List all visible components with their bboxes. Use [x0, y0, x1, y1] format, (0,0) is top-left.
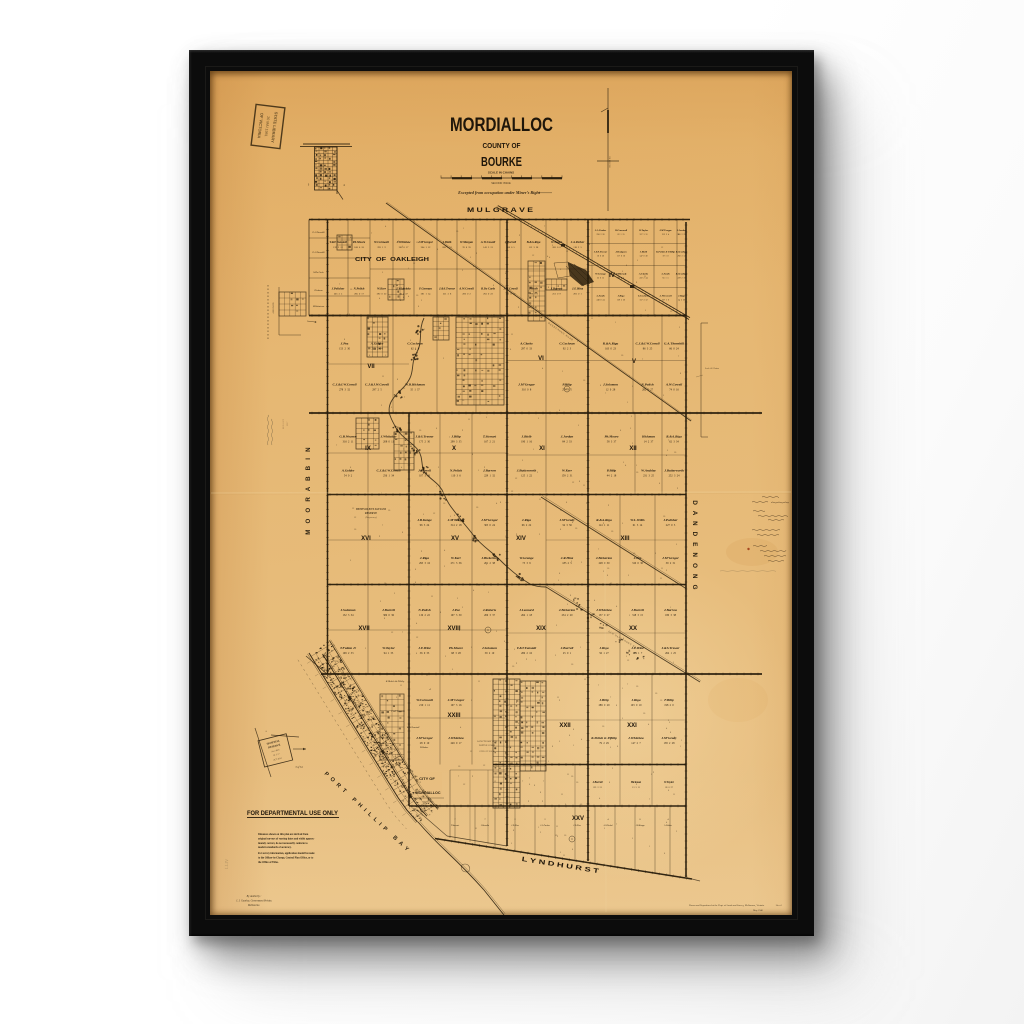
svg-text:J.M’Grady: J.M’Grady — [559, 518, 575, 522]
svg-text:215 2 24: 215 2 24 — [372, 347, 384, 350]
svg-text:1: 1 — [670, 607, 671, 609]
svg-text:J.Solomon: J.Solomon — [603, 383, 618, 387]
svg-text:11: 11 — [475, 828, 477, 830]
svg-text:K.Polish & P.Bilip: K.Polish & P.Bilip — [590, 736, 617, 740]
svg-text:A: A — [265, 730, 267, 733]
svg-text:3 of 34: 3 of 34 — [295, 766, 303, 769]
svg-text:269 2 16: 269 2 16 — [521, 652, 533, 655]
svg-text:5: 5 — [496, 631, 498, 633]
svg-text:12: 12 — [619, 274, 621, 276]
svg-text:M U L G R A V E: M U L G R A V E — [467, 207, 533, 214]
svg-text:206 0 2: 206 0 2 — [462, 293, 471, 296]
svg-text:3: 3 — [666, 570, 668, 572]
svg-text:2: 2 — [527, 299, 528, 301]
svg-text:Hickman: Hickman — [641, 434, 655, 438]
svg-text:1: 1 — [627, 402, 628, 404]
svg-text:4: 4 — [626, 652, 628, 654]
svg-text:11: 11 — [414, 455, 416, 457]
svg-text:10: 10 — [462, 400, 465, 402]
svg-text:185 2 5: 185 2 5 — [562, 562, 572, 565]
svg-text:J.Riga: J.Riga — [420, 556, 429, 560]
svg-text:231 3 25: 231 3 25 — [643, 474, 655, 477]
svg-text:147 0 30: 147 0 30 — [640, 256, 648, 258]
svg-text:J.Whitelaw: J.Whitelaw — [448, 736, 464, 740]
svg-text:12: 12 — [661, 247, 663, 249]
svg-text:A.W.Cowell: A.W.Cowell — [458, 287, 474, 291]
svg-text:39 2 31: 39 2 31 — [666, 562, 676, 565]
svg-text:264 1 18: 264 1 18 — [521, 614, 533, 617]
svg-text:XIII: XIII — [620, 536, 629, 542]
svg-text:1: 1 — [673, 662, 674, 664]
svg-text:XIX: XIX — [536, 626, 546, 632]
svg-text:23 0 15: 23 0 15 — [597, 278, 604, 280]
svg-text:10: 10 — [564, 835, 567, 837]
svg-text:8: 8 — [440, 612, 442, 614]
svg-text:modern standards of accuracy.: modern standards of accuracy. — [258, 846, 292, 849]
svg-text:6: 6 — [350, 467, 352, 469]
svg-text:J.Poz: J.Poz — [341, 341, 349, 345]
svg-text:12: 12 — [515, 478, 517, 480]
svg-text:6: 6 — [559, 573, 561, 575]
svg-text:10: 10 — [575, 528, 578, 530]
svg-text:9: 9 — [588, 502, 589, 504]
svg-text:2: 2 — [603, 571, 604, 573]
svg-text:N.Polish: N.Polish — [417, 608, 430, 612]
svg-text:C.Cochran: C.Cochran — [638, 295, 650, 298]
svg-text:A.W.Cowell: A.W.Cowell — [665, 383, 682, 387]
svg-text:1: 1 — [488, 592, 489, 594]
svg-text:J.Bickerton: J.Bickerton — [481, 556, 497, 560]
svg-text:11: 11 — [426, 675, 428, 677]
svg-text:12: 12 — [584, 679, 586, 681]
svg-text:6: 6 — [400, 300, 402, 302]
svg-text:9: 9 — [559, 700, 560, 702]
svg-text:7: 7 — [544, 226, 546, 228]
svg-text:292 0 22: 292 0 22 — [377, 293, 387, 296]
svg-text:1: 1 — [675, 582, 676, 584]
svg-text:SCALE IN CHAINS: SCALE IN CHAINS — [488, 171, 514, 175]
svg-text:8: 8 — [493, 285, 495, 287]
svg-text:D A N D E N O N G R O A D: D A N D E N O N G R O A D — [547, 322, 573, 342]
svg-text:8: 8 — [540, 792, 542, 794]
svg-text:4: 4 — [408, 296, 410, 298]
svg-text:7: 7 — [484, 818, 486, 821]
svg-text:J.Bielb: J.Bielb — [529, 287, 538, 291]
svg-text:10: 10 — [611, 531, 614, 533]
svg-text:229 2 18: 229 2 18 — [678, 278, 686, 280]
svg-text:9: 9 — [653, 772, 654, 774]
svg-text:8: 8 — [670, 732, 672, 734]
svg-text:10: 10 — [350, 289, 353, 291]
svg-text:3: 3 — [628, 575, 630, 577]
svg-text:B.&A.Riga: B.&A.Riga — [526, 240, 541, 244]
svg-text:81 3 17: 81 3 17 — [273, 753, 280, 757]
svg-text:4: 4 — [549, 257, 551, 259]
svg-text:281 1 14: 281 1 14 — [421, 293, 431, 296]
svg-text:RED OUT: RED OUT — [282, 418, 285, 429]
svg-text:5: 5 — [402, 246, 404, 248]
svg-text:8: 8 — [534, 785, 536, 787]
svg-text:222 2 34: 222 2 34 — [640, 278, 648, 280]
svg-text:2: 2 — [540, 832, 541, 834]
svg-text:(Temporary): (Temporary) — [365, 516, 377, 519]
svg-text:W.Baker: W.Baker — [420, 746, 428, 749]
svg-text:108 0 18: 108 0 18 — [354, 246, 364, 249]
svg-text:6: 6 — [415, 582, 417, 584]
svg-text:C.Cochran: C.Cochran — [407, 341, 422, 345]
svg-text:9: 9 — [588, 340, 589, 342]
svg-text:3: 3 — [679, 327, 681, 329]
svg-text:BOURKE: BOURKE — [481, 155, 522, 169]
svg-text:J.Whitelaw: J.Whitelaw — [397, 240, 412, 244]
svg-text:11: 11 — [660, 578, 662, 580]
svg-text:M O O R A B B I N: M O O R A B B I N — [305, 445, 312, 535]
svg-text:59 2 10: 59 2 10 — [485, 652, 495, 655]
svg-text:RESERVE: RESERVE — [365, 512, 377, 515]
svg-text:282 0 27: 282 0 27 — [642, 389, 654, 392]
svg-text:7: 7 — [605, 393, 607, 395]
svg-text:J.E.Hinz: J.E.Hinz — [572, 287, 584, 291]
svg-text:285 0 6: 285 0 6 — [552, 246, 561, 249]
svg-text:7: 7 — [610, 697, 612, 699]
svg-text:9: 9 — [421, 551, 422, 553]
svg-text:11: 11 — [511, 334, 513, 336]
svg-text:1: 1 — [626, 656, 627, 658]
svg-text:251 0 9: 251 0 9 — [552, 293, 561, 296]
svg-text:CITY OF: CITY OF — [419, 776, 435, 781]
svg-text:May 1946: May 1946 — [753, 909, 764, 912]
svg-text:4: 4 — [581, 739, 583, 741]
svg-text:206 2 29: 206 2 29 — [678, 234, 686, 236]
svg-text:6: 6 — [569, 735, 571, 737]
svg-text:231 0 16: 231 0 16 — [506, 293, 516, 296]
svg-text:W.L.Willis: W.L.Willis — [630, 518, 645, 522]
svg-text:11: 11 — [644, 276, 646, 278]
svg-text:7: 7 — [669, 231, 671, 233]
svg-text:6: 6 — [576, 818, 578, 821]
svg-text:219 1 11: 219 1 11 — [419, 704, 430, 707]
svg-text:Drawn and Reproduced at the De: Drawn and Reproduced at the Dept. of Lan… — [689, 904, 765, 907]
svg-text:T.&T.Tunstall: T.&T.Tunstall — [391, 710, 405, 713]
svg-text:12: 12 — [354, 517, 356, 519]
svg-text:2: 2 — [443, 358, 444, 360]
svg-text:200 ACRES: 200 ACRES — [423, 801, 435, 804]
svg-text:5: 5 — [511, 843, 513, 845]
svg-text:J.B.Kenge: J.B.Kenge — [636, 825, 645, 827]
svg-text:V: V — [632, 359, 636, 365]
svg-text:XII: XII — [629, 446, 637, 452]
svg-text:F.Bilip: F.Bilip — [664, 698, 674, 702]
svg-text:8: 8 — [446, 246, 448, 248]
svg-text:W.B.Hickman: W.B.Hickman — [405, 383, 425, 387]
svg-text:W.Cornwall: W.Cornwall — [416, 698, 433, 702]
svg-text:J.Bickerton: J.Bickerton — [596, 556, 612, 560]
svg-text:10: 10 — [571, 664, 574, 666]
svg-text:1: 1 — [393, 411, 394, 413]
svg-text:T.Fulton Jr: T.Fulton Jr — [340, 646, 357, 650]
svg-text:No 2 RES: No 2 RES — [270, 749, 279, 753]
svg-text:2: 2 — [514, 818, 516, 821]
svg-text:8: 8 — [472, 454, 474, 456]
svg-text:N.Polish: N.Polish — [449, 468, 462, 472]
svg-text:Hickman: Hickman — [630, 781, 642, 784]
svg-text:6: 6 — [418, 306, 420, 308]
svg-text:289 0 29: 289 0 29 — [599, 704, 611, 707]
svg-text:J.&S.Trewar: J.&S.Trewar — [439, 287, 456, 291]
svg-text:4: 4 — [594, 600, 596, 602]
svg-text:4: 4 — [666, 728, 668, 730]
svg-text:1: 1 — [463, 228, 464, 230]
svg-text:4: 4 — [343, 184, 345, 187]
svg-text:3: 3 — [457, 598, 459, 600]
svg-text:J.M’Gregor: J.M’Gregor — [448, 698, 465, 702]
svg-text:229 1 32: 229 1 32 — [484, 474, 496, 477]
svg-text:R.De Carle: R.De Carle — [481, 287, 496, 291]
svg-text:2: 2 — [544, 818, 546, 821]
svg-text:J.Burrell: J.Burrell — [592, 781, 602, 784]
svg-text:3: 3 — [556, 625, 558, 627]
svg-text:J.Bilip: J.Bilip — [451, 434, 461, 438]
svg-text:8: 8 — [639, 818, 641, 821]
svg-text:J.Whitelaw: J.Whitelaw — [381, 434, 397, 438]
svg-text:J.M’Gregor: J.M’Gregor — [418, 240, 434, 244]
svg-text:12: 12 — [391, 632, 393, 634]
svg-text:6: 6 — [349, 314, 351, 316]
svg-text:OF VICTORIA: OF VICTORIA — [256, 113, 264, 139]
svg-text:J.M’Gregor: J.M’Gregor — [662, 556, 679, 560]
svg-text:6: 6 — [572, 849, 574, 851]
svg-text:2: 2 — [391, 407, 392, 409]
svg-text:J.Butterworth: J.Butterworth — [517, 468, 537, 472]
svg-text:J.M.Cowell: J.M.Cowell — [503, 287, 517, 291]
svg-text:1: 1 — [504, 777, 505, 779]
svg-text:7: 7 — [627, 684, 629, 686]
svg-text:12 0 28: 12 0 28 — [606, 389, 616, 392]
svg-text:9: 9 — [476, 253, 477, 255]
svg-text:266 0 17: 266 0 17 — [399, 246, 409, 249]
svg-text:2: 2 — [565, 804, 566, 806]
svg-text:2: 2 — [445, 656, 446, 658]
svg-text:8: 8 — [607, 575, 609, 577]
svg-text:316 2 11: 316 2 11 — [343, 440, 354, 443]
svg-text:J.Riga: J.Riga — [599, 646, 608, 650]
svg-text:7: 7 — [458, 776, 460, 778]
svg-text:A.Clarke: A.Clarke — [638, 273, 649, 276]
svg-text:K.Polish & P.Bilip: K.Polish & P.Bilip — [655, 251, 676, 254]
svg-text:5: 5 — [450, 516, 452, 518]
svg-text:4: 4 — [496, 503, 498, 505]
svg-text:T.Stewart: T.Stewart — [451, 824, 460, 827]
svg-text:9: 9 — [484, 467, 485, 469]
svg-text:6: 6 — [415, 569, 417, 571]
svg-text:10: 10 — [602, 726, 605, 728]
svg-text:6: 6 — [487, 629, 489, 632]
svg-text:11: 11 — [557, 697, 559, 699]
svg-text:158 2 28: 158 2 28 — [664, 742, 676, 745]
svg-text:O L D D A N D E N O N G R: O L D D A N D E N O N G R D — [608, 630, 637, 649]
svg-text:5: 5 — [470, 257, 472, 259]
svg-text:W.Morgan: W.Morgan — [460, 240, 474, 244]
svg-text:J.A.Parker: J.A.Parker — [595, 229, 606, 232]
svg-text:11: 11 — [478, 681, 480, 683]
svg-text:A.Gelder: A.Gelder — [663, 824, 672, 827]
svg-text:6: 6 — [529, 784, 531, 786]
svg-text:66 2 22: 66 2 22 — [522, 524, 532, 527]
svg-text:228 0 30: 228 0 30 — [599, 562, 611, 565]
svg-text:175 2 30: 175 2 30 — [419, 440, 431, 443]
svg-text:5: 5 — [471, 647, 473, 649]
svg-text:8: 8 — [636, 282, 638, 284]
svg-text:260 3 12: 260 3 12 — [678, 256, 686, 258]
svg-text:28 0 10: 28 0 10 — [420, 742, 430, 745]
svg-text:299 3 35: 299 3 35 — [451, 440, 463, 443]
svg-text:141 1 11: 141 1 11 — [599, 524, 610, 527]
svg-text:W.Taylor: W.Taylor — [639, 229, 648, 232]
svg-text:152 3 34: 152 3 34 — [343, 614, 355, 617]
svg-text:8: 8 — [505, 273, 507, 275]
svg-text:6: 6 — [566, 502, 568, 504]
svg-text:7: 7 — [598, 549, 600, 551]
svg-text:9: 9 — [519, 235, 520, 237]
svg-text:5: 5 — [669, 722, 671, 724]
svg-text:54 2 20: 54 2 20 — [678, 300, 685, 302]
svg-text:A.W.Cowell: A.W.Cowell — [658, 295, 671, 298]
svg-text:W.Taylor: W.Taylor — [382, 646, 395, 650]
svg-text:6: 6 — [350, 237, 352, 239]
svg-text:12: 12 — [532, 255, 534, 257]
svg-text:5: 5 — [631, 416, 633, 418]
svg-text:8: 8 — [384, 618, 386, 620]
svg-text:62 1 8: 62 1 8 — [411, 347, 420, 350]
svg-text:J.M’Gregor: J.M’Gregor — [481, 518, 498, 522]
svg-text:1: 1 — [615, 322, 616, 324]
svg-text:W.Grange: W.Grange — [595, 273, 606, 276]
svg-text:74 0 16: 74 0 16 — [669, 389, 679, 392]
svg-text:5: 5 — [578, 425, 580, 427]
svg-text:6: 6 — [620, 430, 622, 432]
svg-text:L Y N D H U R S T: L Y N D H U R S T — [521, 856, 599, 875]
svg-text:J.R.Hinz: J.R.Hinz — [561, 556, 574, 560]
svg-text:167 2 21: 167 2 21 — [484, 440, 496, 443]
svg-text:1: 1 — [636, 465, 637, 467]
svg-text:12: 12 — [505, 761, 507, 763]
svg-text:J.Burrell: J.Burrell — [505, 240, 516, 244]
svg-text:R.&A.Riga: R.&A.Riga — [666, 434, 682, 438]
svg-text:2: 2 — [381, 405, 382, 407]
svg-text:6: 6 — [664, 853, 666, 855]
svg-text:7: 7 — [339, 284, 341, 286]
svg-text:10: 10 — [655, 693, 658, 695]
svg-text:8: 8 — [402, 532, 404, 534]
svg-text:Excepted from occupation under: Excepted from occupation under Miner’s R… — [457, 190, 541, 195]
svg-text:1: 1 — [680, 746, 681, 748]
svg-text:12: 12 — [494, 781, 496, 783]
svg-text:3: 3 — [555, 655, 557, 657]
svg-text:274 3 5: 274 3 5 — [562, 389, 572, 392]
svg-text:5: 5 — [645, 310, 647, 312]
svg-text:36 0 33: 36 0 33 — [420, 652, 430, 655]
svg-text:A.B.Turkel: A.B.Turkel — [602, 824, 613, 827]
svg-text:T.Stewart: T.Stewart — [483, 434, 497, 438]
svg-text:8: 8 — [589, 244, 591, 246]
svg-text:W.Taylor: W.Taylor — [664, 781, 675, 784]
svg-text:1: 1 — [622, 688, 623, 690]
svg-text:190 1 16: 190 1 16 — [521, 440, 533, 443]
svg-text:252 3 24: 252 3 24 — [669, 474, 681, 477]
svg-text:D A N D E N O N G: D A N D E N O N G — [691, 500, 698, 591]
svg-text:For survey information, applic: For survey information, application shou… — [258, 852, 315, 855]
svg-text:F.Gorman: F.Gorman — [419, 287, 432, 291]
svg-text:1: 1 — [486, 632, 487, 634]
svg-text:J.Whitelaw: J.Whitelaw — [596, 608, 612, 612]
svg-text:12: 12 — [416, 242, 418, 244]
svg-text:5: 5 — [350, 560, 352, 562]
svg-text:118 2 5: 118 2 5 — [573, 246, 582, 249]
svg-text:11: 11 — [561, 794, 563, 796]
svg-text:297 2 5: 297 2 5 — [372, 389, 382, 392]
svg-text:125 1 22: 125 1 22 — [521, 474, 533, 477]
svg-text:6: 6 — [659, 483, 661, 485]
svg-text:5: 5 — [676, 544, 678, 546]
svg-text:278 3 32: 278 3 32 — [339, 389, 351, 392]
svg-text:3: 3 — [491, 315, 493, 317]
svg-text:XI: XI — [539, 446, 545, 452]
svg-text:J.Riga: J.Riga — [522, 518, 531, 522]
svg-text:20 MAI 1981: 20 MAI 1981 — [264, 116, 270, 137]
svg-text:8: 8 — [416, 653, 418, 655]
svg-text:5: 5 — [471, 700, 473, 702]
svg-text:J.A.Parker: J.A.Parker — [571, 240, 585, 244]
svg-text:254 2 20: 254 2 20 — [562, 614, 574, 617]
svg-text:C.Cochran: C.Cochran — [559, 341, 574, 345]
svg-text:J.M’Gregor: J.M’Gregor — [659, 229, 671, 232]
svg-text:109 2 33: 109 2 33 — [343, 652, 355, 655]
svg-text:157 3 12: 157 3 12 — [640, 300, 648, 302]
svg-text:5: 5 — [604, 828, 606, 830]
svg-text:309 0 36: 309 0 36 — [383, 614, 395, 617]
svg-text:137 0 27: 137 0 27 — [599, 614, 611, 617]
svg-text:11: 11 — [591, 318, 593, 320]
svg-text:2: 2 — [421, 300, 422, 302]
svg-text:5: 5 — [538, 418, 540, 420]
svg-text:HOSPITAL: HOSPITAL — [266, 739, 280, 745]
svg-text:11: 11 — [400, 685, 402, 687]
svg-text:6: 6 — [668, 790, 670, 792]
svg-text:3: 3 — [462, 270, 464, 272]
svg-text:7: 7 — [449, 437, 451, 439]
svg-text:J.Butterworth: J.Butterworth — [664, 468, 684, 472]
svg-text:62 1 15: 62 1 15 — [618, 234, 625, 236]
svg-text:10: 10 — [633, 553, 636, 555]
svg-text:J.M’Gregor: J.M’Gregor — [448, 518, 465, 522]
svg-text:6: 6 — [545, 765, 547, 767]
svg-text:12: 12 — [403, 388, 405, 390]
svg-text:84 2 33: 84 2 33 — [562, 440, 572, 443]
svg-text:1: 1 — [558, 580, 559, 582]
svg-text:13 3 11: 13 3 11 — [632, 787, 639, 789]
svg-text:6: 6 — [623, 638, 625, 640]
svg-text:201 2 38: 201 2 38 — [484, 562, 496, 565]
svg-text:10: 10 — [388, 510, 391, 512]
svg-text:7: 7 — [404, 397, 406, 399]
svg-text:281 0 1: 281 0 1 — [573, 293, 582, 296]
svg-text:256 1 34: 256 1 34 — [383, 474, 395, 477]
svg-text:19 1 0: 19 1 0 — [663, 256, 669, 258]
svg-text:12: 12 — [352, 508, 354, 510]
svg-text:198 2 0: 198 2 0 — [664, 704, 674, 707]
svg-text:Hickman: Hickman — [314, 290, 323, 292]
svg-text:10: 10 — [674, 452, 677, 454]
